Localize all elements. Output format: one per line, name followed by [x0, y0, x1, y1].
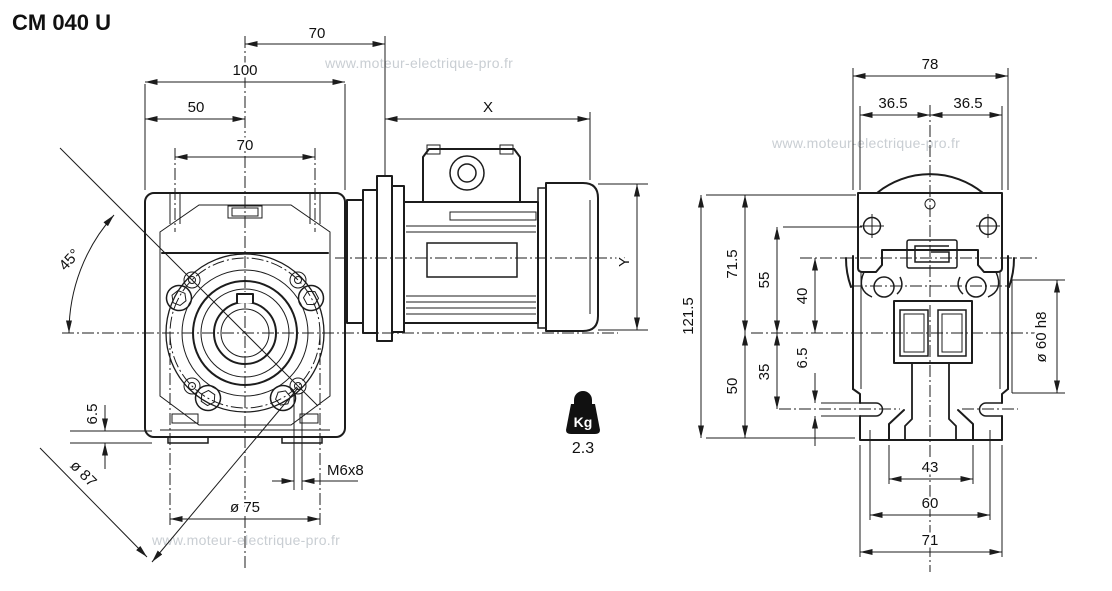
dim-label-6-5: 6.5 — [84, 404, 101, 425]
dim-label-6-5: 6.5 — [794, 348, 811, 369]
nameplate — [427, 243, 517, 277]
dim-label-dia60h8: ø 60 h8 — [1033, 312, 1050, 363]
drawing-canvas: CM 040 U www.moteur-electrique-pro.fr ww… — [0, 0, 1112, 591]
dim-label-dia87: ø 87 — [67, 457, 100, 490]
dim-label-100: 100 — [232, 62, 257, 79]
weight-value: 2.3 — [572, 440, 594, 457]
dim-label-50: 50 — [724, 378, 741, 395]
dim-label-x: X — [483, 99, 493, 116]
bottom-plug-right — [300, 414, 318, 423]
dim-label-121-5: 121.5 — [680, 297, 697, 335]
weight-unit-label: Kg — [574, 414, 593, 430]
dim-label-70-holes: 70 — [237, 137, 254, 154]
dim-label-43: 43 — [922, 459, 939, 476]
dim-label-dia75: ø 75 — [230, 499, 260, 516]
worm-housing — [347, 200, 363, 323]
technical-drawing: 70 100 50 70 X Y 45° — [0, 0, 1112, 591]
rear-view: 78 36.5 36.5 121.5 71.5 55 40 — [680, 56, 1065, 572]
flange-screw — [860, 214, 884, 238]
dim-label-y: Y — [616, 257, 633, 267]
cable-gland — [450, 156, 484, 190]
dim-label-55: 55 — [756, 272, 773, 289]
dim-label-m6x8: M6x8 — [327, 462, 364, 479]
dim-label-71-5: 71.5 — [724, 249, 741, 278]
dim-label-71: 71 — [922, 532, 939, 549]
flange-screw — [976, 214, 1000, 238]
side-view-centerlines — [62, 36, 625, 570]
dim-label-50: 50 — [188, 99, 205, 116]
side-view: 70 100 50 70 X Y 45° — [40, 25, 648, 570]
dim-label-60: 60 — [922, 495, 939, 512]
dim-label-35: 35 — [756, 364, 773, 381]
dia87-leader — [40, 448, 147, 557]
clamp-bolt — [874, 277, 894, 297]
dim-label-70-top: 70 — [309, 25, 326, 42]
diagonal-45 — [60, 148, 318, 406]
foot-left — [853, 389, 904, 440]
dim-label-45deg: 45° — [56, 246, 84, 274]
rear-view-centerlines — [751, 105, 1040, 572]
dim-label-40: 40 — [794, 288, 811, 305]
weight-icon: Kg 2.3 — [566, 391, 600, 457]
hex-bolt — [297, 284, 325, 312]
dim-label-36-5-left: 36.5 — [878, 95, 907, 112]
dim-label-78: 78 — [922, 56, 939, 73]
dim-label-36-5-right: 36.5 — [953, 95, 982, 112]
clamp-arm — [861, 272, 872, 297]
clamp-bolt — [966, 277, 986, 297]
